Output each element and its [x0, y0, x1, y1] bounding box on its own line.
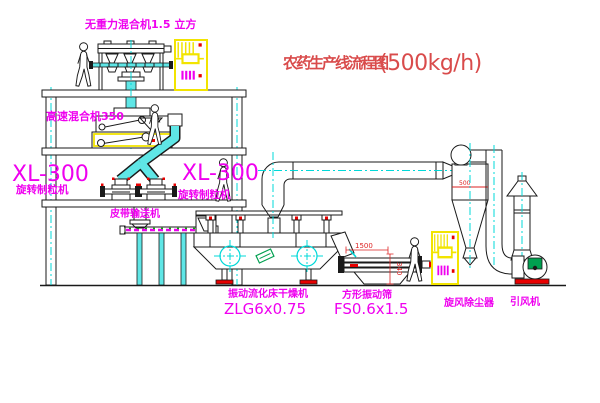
cyclone-label: 旋风除尘器 [443, 296, 495, 309]
granulator-left-label: 旋转制粒机 [15, 183, 69, 196]
dryer-model: ZLG6x0.75 [224, 300, 306, 318]
induced-draft-fan [512, 255, 549, 284]
diagram-canvas: 500 [0, 0, 600, 403]
control-cabinet-2 [432, 232, 458, 284]
diagram-title: 农药生产线流程图 [282, 54, 389, 72]
gravity-mixer-label: 无重力混合机1.5 立方 [84, 17, 196, 31]
belt-conveyor-label: 皮带输送机 [109, 207, 160, 220]
dryer-label: 振动流化床干燥机 [228, 287, 308, 300]
granulator-right-model: XL-300 [182, 161, 259, 186]
diagram-capacity: (500kg/h) [379, 51, 482, 76]
sieve-model: FS0.6x1.5 [334, 300, 408, 318]
high-speed-mixer-label: 高速混合机350 [46, 109, 124, 123]
cad-flowsheet: 500 [0, 0, 600, 403]
cyclone-dimension: 500 [459, 180, 471, 187]
control-cabinet-1 [175, 40, 207, 90]
granulator-right-label: 旋转制粒机 [177, 188, 231, 201]
fan-label: 引风机 [510, 295, 540, 308]
sieve-height-dim: 340 [395, 262, 403, 275]
sieve-length-dim: 1500 [355, 242, 373, 250]
